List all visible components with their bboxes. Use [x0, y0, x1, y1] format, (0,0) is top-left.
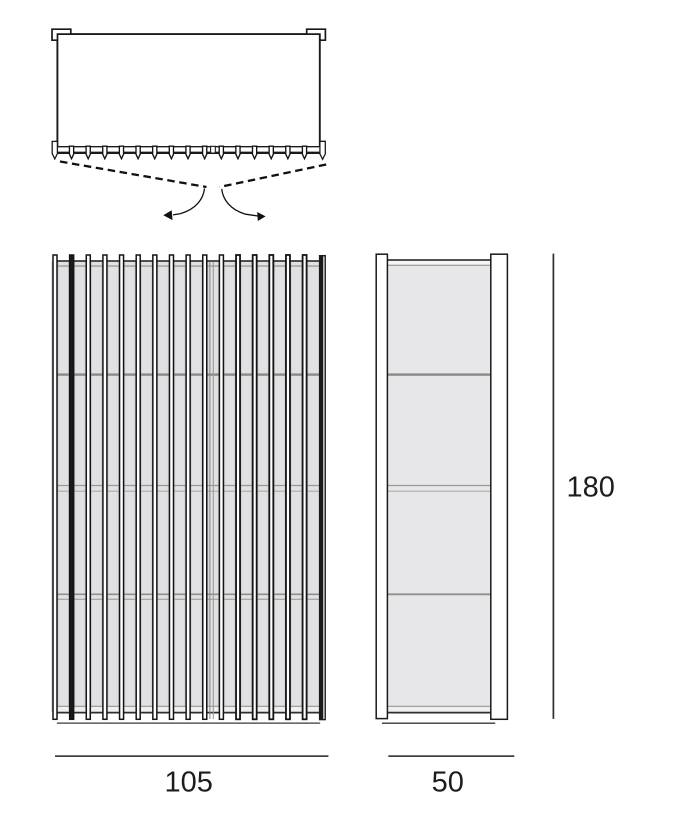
svg-text:50: 50	[432, 766, 464, 798]
svg-text:105: 105	[165, 766, 213, 798]
svg-text:180: 180	[567, 471, 615, 503]
